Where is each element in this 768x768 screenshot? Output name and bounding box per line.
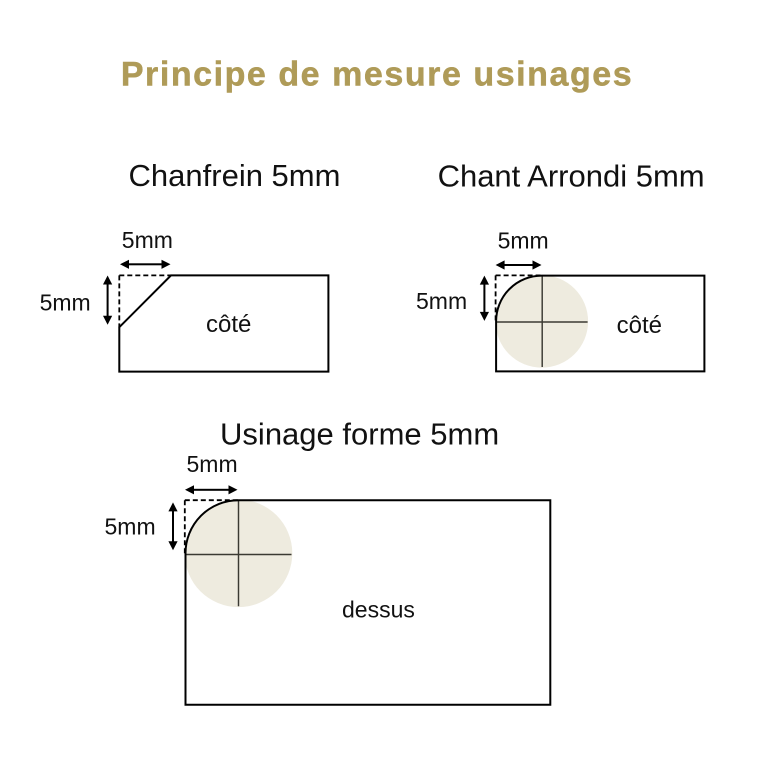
- svg-text:5mm: 5mm: [122, 227, 173, 253]
- svg-text:côté: côté: [617, 312, 662, 339]
- svg-text:5mm: 5mm: [187, 451, 238, 477]
- svg-text:5mm: 5mm: [105, 514, 156, 540]
- svg-text:Principe de mesure usinages: Principe de mesure usinages: [121, 56, 633, 94]
- svg-text:5mm: 5mm: [498, 227, 549, 253]
- svg-text:côté: côté: [206, 311, 251, 338]
- svg-text:Usinage forme 5mm: Usinage forme 5mm: [220, 416, 499, 451]
- svg-text:Chanfrein 5mm: Chanfrein 5mm: [129, 158, 341, 193]
- svg-text:5mm: 5mm: [416, 288, 467, 314]
- svg-text:Chant Arrondi 5mm: Chant Arrondi 5mm: [438, 158, 705, 193]
- svg-text:dessus: dessus: [342, 596, 415, 622]
- svg-text:5mm: 5mm: [40, 290, 91, 316]
